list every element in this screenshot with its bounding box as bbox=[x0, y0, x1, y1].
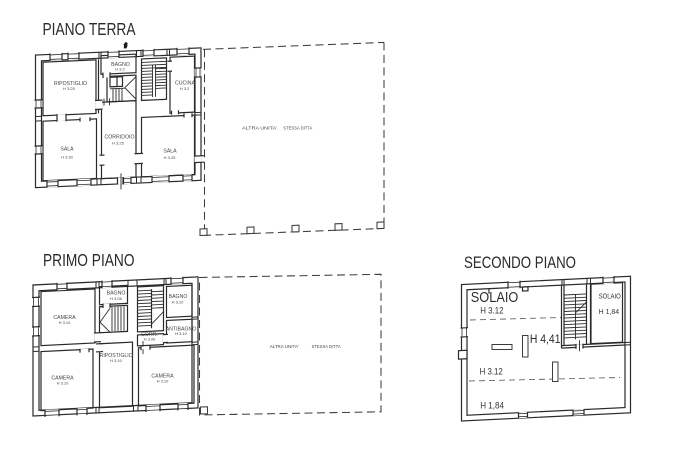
svg-text:H 3.06: H 3.06 bbox=[110, 296, 123, 301]
svg-text:ALTRA UNITA': ALTRA UNITA' bbox=[270, 344, 299, 350]
svg-text:SECONDO PIANO: SECONDO PIANO bbox=[464, 253, 576, 272]
svg-text:ALTRA UNITA': ALTRA UNITA' bbox=[242, 126, 277, 132]
svg-text:SOLAIO: SOLAIO bbox=[599, 294, 622, 301]
svg-text:H 3.10: H 3.10 bbox=[110, 358, 123, 363]
svg-text:H 3.2: H 3.2 bbox=[115, 67, 125, 72]
svg-text:H 3.10: H 3.10 bbox=[59, 320, 72, 325]
svg-text:H 3.2: H 3.2 bbox=[180, 86, 190, 91]
svg-text:H 1,84: H 1,84 bbox=[480, 401, 504, 411]
svg-text:H 3.10: H 3.10 bbox=[157, 379, 170, 384]
svg-text:STESSA DITTA: STESSA DITTA bbox=[312, 344, 342, 350]
svg-text:SALA: SALA bbox=[60, 147, 74, 153]
svg-text:PIANO TERRA: PIANO TERRA bbox=[43, 19, 136, 39]
svg-text:H 3.25: H 3.25 bbox=[164, 155, 177, 160]
svg-text:H 1,84: H 1,84 bbox=[599, 307, 620, 316]
svg-text:H 3.12: H 3.12 bbox=[480, 367, 503, 377]
svg-text:SOLAIO: SOLAIO bbox=[471, 290, 519, 306]
svg-text:H 3.06: H 3.06 bbox=[144, 337, 157, 342]
svg-text:PRIMO PIANO: PRIMO PIANO bbox=[43, 250, 135, 270]
svg-text:H 3.10: H 3.10 bbox=[175, 331, 188, 336]
svg-text:STESSA DITTA: STESSA DITTA bbox=[283, 126, 313, 132]
svg-text:H 3.10: H 3.10 bbox=[57, 381, 70, 386]
svg-text:H 3.25: H 3.25 bbox=[112, 141, 125, 146]
svg-text:H 3.25: H 3.25 bbox=[63, 86, 76, 91]
svg-text:H 3.12: H 3.12 bbox=[480, 306, 503, 316]
svg-text:SALA: SALA bbox=[163, 149, 177, 155]
svg-text:H 3.10: H 3.10 bbox=[172, 300, 185, 305]
svg-text:H 4,41: H 4,41 bbox=[530, 334, 561, 346]
svg-text:H 3.30: H 3.30 bbox=[61, 155, 74, 160]
